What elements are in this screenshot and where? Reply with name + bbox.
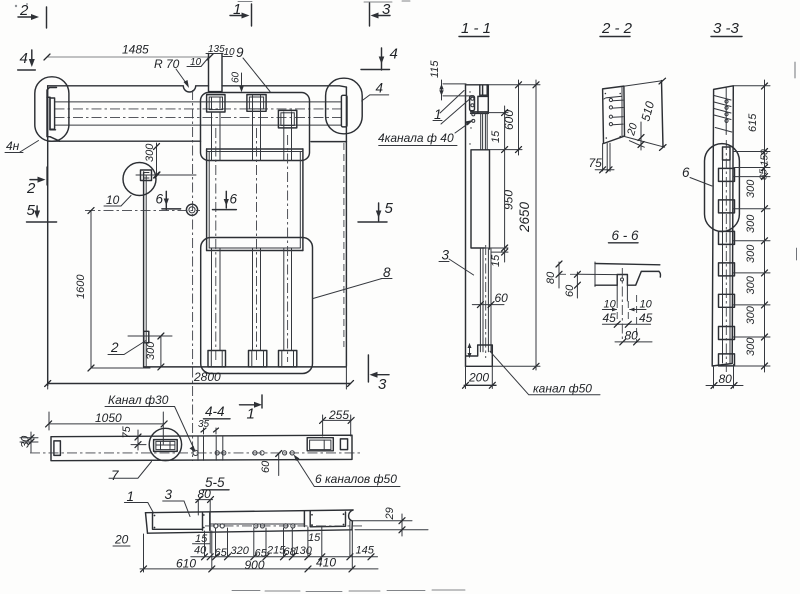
- svg-text:29: 29: [384, 507, 396, 520]
- svg-text:200: 200: [468, 371, 489, 385]
- svg-text:320: 320: [231, 545, 250, 557]
- svg-text:40: 40: [194, 545, 207, 557]
- svg-text:1: 1: [434, 107, 442, 122]
- svg-text:30: 30: [20, 435, 32, 448]
- svg-text:10: 10: [640, 299, 653, 311]
- svg-text:80: 80: [545, 271, 557, 284]
- svg-text:6: 6: [682, 165, 690, 180]
- svg-text:1 - 1: 1 - 1: [461, 20, 491, 37]
- svg-text:950: 950: [502, 190, 516, 210]
- svg-text:615: 615: [747, 113, 759, 132]
- svg-text:75: 75: [121, 425, 133, 438]
- svg-text:900: 900: [245, 558, 265, 572]
- svg-text:60: 60: [231, 71, 242, 83]
- svg-text:3: 3: [442, 248, 450, 263]
- svg-text:6 - 6: 6 - 6: [612, 228, 640, 243]
- svg-text:410: 410: [316, 556, 336, 570]
- svg-text:10: 10: [106, 193, 120, 207]
- svg-text:6: 6: [156, 192, 164, 207]
- svg-text:300: 300: [745, 214, 757, 233]
- svg-text:3 -3: 3 -3: [713, 20, 740, 37]
- svg-text:4: 4: [390, 46, 398, 63]
- svg-text:3: 3: [378, 376, 387, 393]
- svg-text:4: 4: [376, 81, 384, 96]
- svg-text:45: 45: [603, 311, 617, 325]
- svg-text:2: 2: [110, 340, 119, 355]
- svg-text:3: 3: [165, 487, 173, 502]
- svg-text:1: 1: [247, 406, 255, 423]
- svg-text:115: 115: [429, 60, 441, 78]
- svg-text:15: 15: [308, 532, 321, 544]
- svg-text:2800: 2800: [193, 370, 221, 384]
- svg-text:1050: 1050: [95, 411, 122, 425]
- svg-text:80: 80: [719, 372, 733, 386]
- svg-text:4н: 4н: [6, 139, 20, 153]
- svg-text:75: 75: [589, 156, 603, 170]
- svg-text:6 каналов ф50: 6 каналов ф50: [315, 472, 397, 486]
- svg-text:2 - 2: 2 - 2: [601, 20, 633, 37]
- svg-text:6: 6: [230, 192, 238, 207]
- svg-text:300: 300: [144, 143, 156, 162]
- svg-text:300: 300: [745, 244, 757, 263]
- svg-text:15: 15: [490, 254, 502, 267]
- svg-text:300: 300: [745, 275, 757, 294]
- svg-text:45: 45: [639, 311, 653, 325]
- svg-text:5: 5: [385, 200, 394, 217]
- svg-text:60: 60: [260, 460, 272, 473]
- svg-text:300: 300: [745, 337, 757, 356]
- svg-text:145: 145: [356, 545, 375, 557]
- svg-text:7: 7: [111, 468, 119, 483]
- svg-text:2: 2: [26, 180, 36, 197]
- svg-text:1: 1: [127, 489, 135, 504]
- svg-text:4канала ф 40: 4канала ф 40: [378, 131, 454, 145]
- svg-text:60: 60: [564, 284, 576, 297]
- svg-text:канал ф50: канал ф50: [533, 382, 592, 396]
- svg-text:4: 4: [20, 50, 28, 67]
- svg-text:Канал ф30: Канал ф30: [108, 393, 169, 407]
- svg-text:60: 60: [495, 291, 509, 305]
- svg-text:8: 8: [383, 265, 391, 280]
- svg-text:80: 80: [625, 329, 639, 343]
- svg-text:300: 300: [745, 305, 757, 324]
- svg-text:600: 600: [502, 110, 516, 130]
- svg-text:15: 15: [195, 533, 208, 545]
- svg-text:1485: 1485: [122, 43, 149, 57]
- svg-text:15: 15: [490, 130, 502, 143]
- svg-text:300: 300: [145, 341, 157, 360]
- svg-text:4-4: 4-4: [205, 404, 225, 419]
- svg-text:2650: 2650: [517, 201, 532, 233]
- svg-text:20: 20: [114, 533, 129, 547]
- svg-text:1600: 1600: [75, 274, 87, 299]
- svg-text:300: 300: [745, 179, 757, 198]
